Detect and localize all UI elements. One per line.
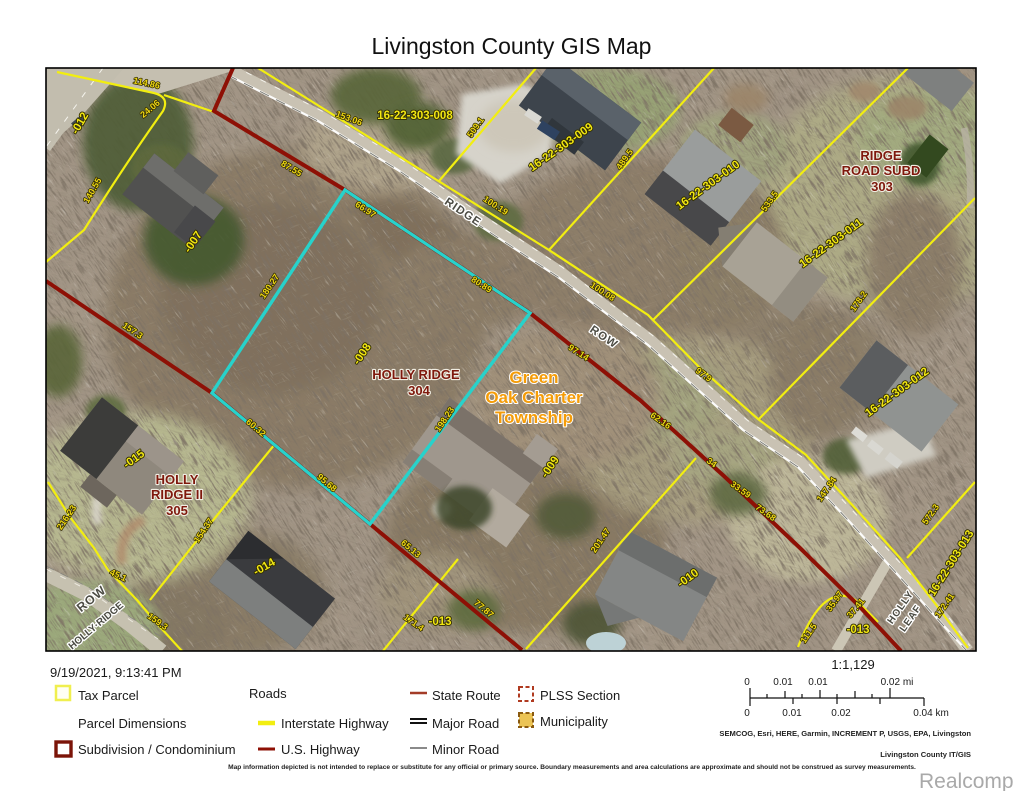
svg-text:State Route: State Route <box>432 688 501 703</box>
svg-text:-013: -013 <box>428 616 451 628</box>
svg-text:Tax Parcel: Tax Parcel <box>78 688 139 703</box>
svg-text:Subdivision / Condominium: Subdivision / Condominium <box>78 742 236 757</box>
svg-text:Interstate Highway: Interstate Highway <box>281 716 389 731</box>
svg-text:U.S. Highway: U.S. Highway <box>281 742 360 757</box>
svg-text:Major Road: Major Road <box>432 716 499 731</box>
svg-text:0: 0 <box>744 677 750 688</box>
svg-text:SEMCOG, Esri, HERE, Garmin, IN: SEMCOG, Esri, HERE, Garmin, INCREMENT P,… <box>719 729 971 738</box>
svg-text:Parcel Dimensions: Parcel Dimensions <box>78 716 187 731</box>
svg-text:ROAD SUBD: ROAD SUBD <box>842 163 921 178</box>
svg-text:0.02 mi: 0.02 mi <box>881 677 914 688</box>
svg-text:Realcomp: Realcomp <box>919 770 1014 791</box>
svg-text:303: 303 <box>871 179 893 194</box>
svg-text:0.01: 0.01 <box>773 677 793 688</box>
svg-text:0.01: 0.01 <box>782 708 802 719</box>
svg-text:0.04 km: 0.04 km <box>913 708 949 719</box>
svg-text:Oak Charter: Oak Charter <box>485 388 583 407</box>
svg-text:PLSS Section: PLSS Section <box>540 688 620 703</box>
svg-text:1:1,129: 1:1,129 <box>831 657 874 672</box>
svg-text:Livingston County IT/GIS: Livingston County IT/GIS <box>880 750 971 759</box>
svg-text:Township: Township <box>495 408 573 427</box>
svg-text:16-22-303-008: 16-22-303-008 <box>377 110 453 122</box>
svg-text:HOLLY: HOLLY <box>156 472 199 487</box>
svg-text:304: 304 <box>408 383 430 398</box>
svg-text:Map information depicted is no: Map information depicted is not intended… <box>228 764 916 771</box>
svg-text:0.01: 0.01 <box>808 677 828 688</box>
svg-text:Green: Green <box>509 368 558 387</box>
svg-text:RIDGE II: RIDGE II <box>151 487 203 502</box>
svg-text:0.02: 0.02 <box>831 708 851 719</box>
svg-text:RIDGE: RIDGE <box>860 148 902 163</box>
svg-text:Minor Road: Minor Road <box>432 742 499 757</box>
svg-text:-013: -013 <box>846 624 869 636</box>
svg-text:Roads: Roads <box>249 686 287 701</box>
svg-text:305: 305 <box>166 503 188 518</box>
svg-text:0: 0 <box>744 708 750 719</box>
svg-text:HOLLY RIDGE: HOLLY RIDGE <box>372 367 460 382</box>
svg-text:9/19/2021, 9:13:41 PM: 9/19/2021, 9:13:41 PM <box>50 665 182 680</box>
svg-text:Municipality: Municipality <box>540 714 608 729</box>
